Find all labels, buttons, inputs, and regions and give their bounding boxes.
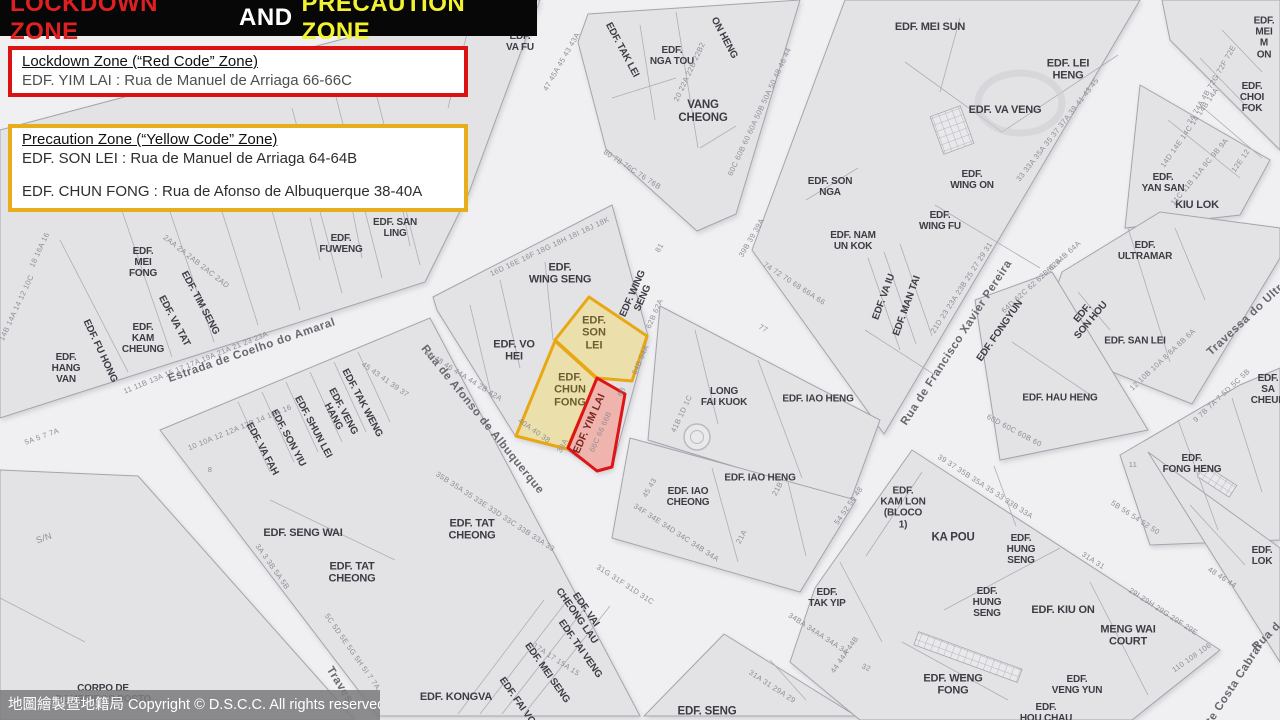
building-label: EDF. SA CHEUN [1251, 373, 1280, 407]
building-label: EDF. HOU CHAU [1020, 702, 1072, 720]
house-number-label: 20 22A 22B 22B2 [673, 41, 708, 103]
building-label: EDF. NAM UN KOK [830, 230, 876, 252]
house-number-label: 54 52 50 48 [833, 486, 865, 527]
house-number-label: 9 7B 7A 7 5D 5C 5B [1192, 368, 1252, 425]
house-number-label: 41B 1D 1C [670, 394, 695, 434]
building-label: EDF. VAI CHEONG LAU [553, 580, 609, 646]
house-number-label: 38A [556, 438, 571, 455]
title-bar: LOCKDOWN ZONE AND PRECAUTION ZONE [0, 0, 537, 36]
house-number-label: 31A 31 [1080, 550, 1106, 571]
house-number-label: 5C 5D 5E 5G 5H 5I 7 7A [322, 612, 381, 691]
house-number-label: 11C 11B 11A 9C 9B 9A [1170, 137, 1231, 207]
building-label: EDF. VA TAT [156, 294, 192, 348]
street-label: Rua de Afonso de Albuquerque [418, 343, 546, 497]
building-label: EDF. HANG VAN [52, 352, 81, 386]
building-label: EDF. SAN LING [373, 217, 417, 239]
house-number-label: 3A 3 3B 5A 5B [253, 543, 291, 592]
map-labels-layer: EDF. VA FUEDF. TAK LEION HENGEDF. NGA TO… [0, 0, 1280, 720]
house-number-label: 66 64B 64A [1045, 239, 1083, 274]
house-number-label: 77 [757, 323, 769, 335]
title-precaution-zone: PRECAUTION ZONE [302, 0, 537, 46]
building-label: EDF. YAN SAN [1142, 172, 1185, 194]
house-number-label: 10 10A 12 12A 12B 14 16A 16 [187, 403, 293, 452]
building-label: EDF. IAO HENG [782, 393, 853, 404]
building-label: EDF. MEI M ON [1254, 16, 1275, 61]
lockdown-zone-entry: EDF. YIM LAI : Rua de Manuel de Arriaga … [22, 72, 454, 89]
building-label: EDF. MEI SUN [895, 21, 965, 33]
building-label: EDF. MAN TAI [891, 275, 923, 338]
building-label: EDF. HUNG SENG [973, 586, 1002, 620]
building-label: EDF. MEI FONG [129, 246, 157, 280]
building-label: MENG WAI COURT [1100, 624, 1155, 649]
title-and: AND [239, 4, 293, 32]
building-label: EDF. VA FAH [243, 421, 280, 477]
house-number-label: 64D 62C 62 62B 62A [1000, 257, 1064, 315]
house-number-label: 47 45A 45 43 43A [542, 31, 582, 92]
building-label: EDF. VENG YUN [1052, 674, 1102, 696]
building-label: VANG CHEONG [678, 99, 727, 125]
house-number-label: 18 16A 16 [28, 231, 51, 268]
building-label: EDF. FONGYUN [975, 298, 1025, 363]
building-label: EDF. TAK WENG [339, 367, 384, 439]
building-label: EDF. SON YIU [268, 408, 307, 469]
house-number-label: 62B 62A [645, 298, 666, 330]
precaution-zone-label: EDF. CHUN FONG [554, 372, 586, 409]
house-number-label: 21D 23 23A 23B 25 27 29 31 [929, 241, 994, 335]
building-label: EDF. LEI HENG [1047, 58, 1089, 83]
house-number-label: 5B 56 54 52 50 [1109, 499, 1161, 537]
house-number-label: 2AA 2A 2AB 2AC 2AD [161, 234, 230, 291]
house-number-label: 12 10B 10A 8 8A 8B 6A [1128, 327, 1197, 392]
house-number-label: 110 108 106 [1171, 641, 1213, 674]
street-label: Rua d [1250, 620, 1280, 654]
house-number-label: 60C 60B 60 60A 50B 50A 50 48 46 44 [727, 47, 794, 178]
house-number-label: 81 [654, 242, 666, 254]
precaution-zone-label: EDF. SON LEI [582, 315, 606, 352]
house-number-label: 8 [208, 466, 213, 474]
building-label: EDF. VENG HANG [316, 386, 360, 442]
building-label: EDF. KIU ON [1031, 604, 1094, 616]
house-number-label: 35B 35A 35 33E 33D 33C 33B 33A 33 [434, 470, 556, 553]
building-label: EDF. TAT CHEONG [448, 518, 495, 543]
precaution-zone-legend-box: Precaution Zone (“Yellow Code” Zone) EDF… [8, 124, 468, 212]
building-label: EDF. KONGVA [420, 691, 492, 703]
building-label: KA POU [931, 532, 974, 545]
building-label: EDF. SHUN LEI [292, 394, 334, 460]
precaution-zone-entry-chun-fong: EDF. CHUN FONG : Rua de Afonso de Albuqu… [22, 183, 454, 200]
house-number-label: S/N [35, 530, 54, 545]
house-number-label: 34F 34E 34D 34C 34B 34A [632, 502, 721, 564]
house-number-label: 32 [860, 662, 872, 673]
house-number-label: 17A 17 15A 15 [531, 642, 581, 678]
house-number-label: 64B 64A [631, 344, 652, 376]
house-number-label: 50 48 46 44A 44 2B 42A [423, 349, 504, 404]
lockdown-zone-legend-box: Lockdown Zone (“Red Code” Zone) EDF. YIM… [8, 46, 468, 97]
house-number-label: 45 43 [641, 477, 659, 499]
building-label: EDF. MEI SENG [522, 641, 572, 705]
building-label: EDF. HUNG SENG [1007, 533, 1036, 567]
lockdown-zone-label: EDF. YIM LAI [572, 392, 609, 455]
building-label: EDF. LOK [1252, 545, 1273, 567]
house-number-label: 68 [616, 386, 627, 398]
building-label: EDF. VO HEI [493, 339, 534, 364]
building-label: EDF. ULTRAMAR [1118, 240, 1172, 262]
building-label: EDF. TAK LEI [603, 21, 641, 79]
building-label: EDF. TIM SENG [179, 269, 222, 336]
building-label: EDF. WING FU [919, 210, 961, 232]
house-number-label: 11 11B 13A 15 17 17A 19A 21A 21 23 23A [123, 330, 270, 396]
building-label: EDF. FUWENG [319, 233, 362, 255]
building-label: EDF. TAT CHEONG [328, 561, 375, 586]
house-number-label: 44 44A 44B [829, 635, 860, 675]
house-number-label: 74 74A 4B 72G 72F 72E [1186, 44, 1238, 126]
building-label: EDF. SON NGA [808, 176, 853, 198]
precaution-zone-entry-son-lei: EDF. SON LEI : Rua de Manuel de Arriaga … [22, 150, 454, 167]
house-number-label: 16D 16E 16F 18G 18H 18I 18J 18K [489, 216, 611, 279]
building-label: EDF. WENG FONG [923, 673, 982, 698]
house-number-label: 21B [771, 481, 785, 498]
building-label: EDF. VA VENG [969, 104, 1042, 116]
house-number-label: 48 46 44 [1206, 566, 1238, 591]
building-label: EDF. SAN LEI [1104, 335, 1166, 346]
building-label: EDF. FAI VO [497, 675, 538, 720]
house-number-label: 40A 40 38 [516, 417, 551, 445]
house-number-label: 80 78 76C 76 76B [602, 148, 663, 191]
house-number-label: 74 72 70 68 66A 66 [761, 261, 826, 307]
house-number-label: 12E 12 [1230, 148, 1252, 174]
building-label: EDF. IAO CHEONG [667, 486, 710, 508]
house-number-label: 39B 39 39A [738, 217, 767, 259]
building-label: EDF. KAM CHEUNG [122, 322, 164, 356]
street-label: Estrada de Coelho do Amaral [167, 316, 338, 386]
lockdown-precaution-map-slide: EDF. VA FUEDF. TAK LEION HENGEDF. NGA TO… [0, 0, 1280, 720]
building-label: EDF. SENG [678, 706, 737, 719]
building-label: EDF. FONG HENG [1163, 453, 1222, 475]
building-label: EDF. WING SENG [618, 269, 659, 324]
building-label: EDF. SENG WAI [263, 527, 342, 539]
house-number-label: 33 33A 35A 35 37 37A 39 41 43 45 [1015, 77, 1101, 184]
street-label: te Costa Cabral [1204, 641, 1266, 720]
building-label: ON HENG [708, 15, 739, 60]
building-label: EDF. TAK YIP [808, 587, 845, 609]
building-label: LONG FAI KUOK [701, 386, 747, 408]
house-number-label: 14D 14E 14C 14 14B 14A [1159, 87, 1220, 170]
precaution-zone-heading: Precaution Zone (“Yellow Code” Zone) [22, 131, 454, 148]
lockdown-zone-heading: Lockdown Zone (“Red Code” Zone) [22, 53, 454, 70]
copyright-bar: 地圖繪製暨地籍局 Copyright © D.S.C.C. All rights… [0, 690, 380, 720]
house-number-label: 29I 29H 29G 29F 29E [1127, 587, 1199, 638]
street-label: Travessa do Ultra [1205, 277, 1280, 359]
building-label: EDF. CHOI FOK [1238, 81, 1266, 115]
house-number-label: 21A [735, 529, 749, 546]
building-label: EDF. TAI VENG [556, 618, 604, 680]
house-number-label: 11 [1129, 461, 1138, 469]
house-number-label: 45 43 41 39 37 [360, 361, 410, 400]
building-label: EDF. WING SENG [529, 262, 591, 287]
house-number-label: 34BA 34AA 34A 34 [786, 611, 849, 656]
title-lockdown-zone: LOCKDOWN ZONE [10, 0, 230, 46]
building-label: EDF. FU HONG [81, 318, 120, 385]
house-number-label: 39 37 35B 35A 35 33 33B 33A [936, 453, 1034, 521]
street-label: Rua de Francisco Xavier Pereira [899, 258, 1016, 428]
building-label: KIU LOK [1175, 199, 1219, 211]
house-number-label: 31A 31 29A 29 [747, 669, 797, 705]
building-label: EDF. VA IU [871, 273, 898, 322]
building-label: EDF. HAU HENG [1022, 392, 1097, 403]
building-label: EDF. NGA TOU [650, 45, 694, 67]
house-number-label: 5A 5 7 7A [24, 427, 61, 447]
building-label: EDF. WING ON [950, 169, 994, 191]
building-label: EDF. IAO HENG [724, 472, 795, 483]
building-label: EDF. KAM LON (BLOCO 1) [880, 486, 925, 531]
house-number-label: 31G 31F 31D 31C [595, 563, 656, 606]
building-label: EDF. SON HOU [1064, 292, 1110, 341]
house-number-label: 60D 60C 60B 60 [985, 413, 1043, 449]
house-number-label: 14B 14A 14 12 10C [0, 274, 36, 343]
house-number-label: 66C 66 66B [588, 410, 613, 453]
